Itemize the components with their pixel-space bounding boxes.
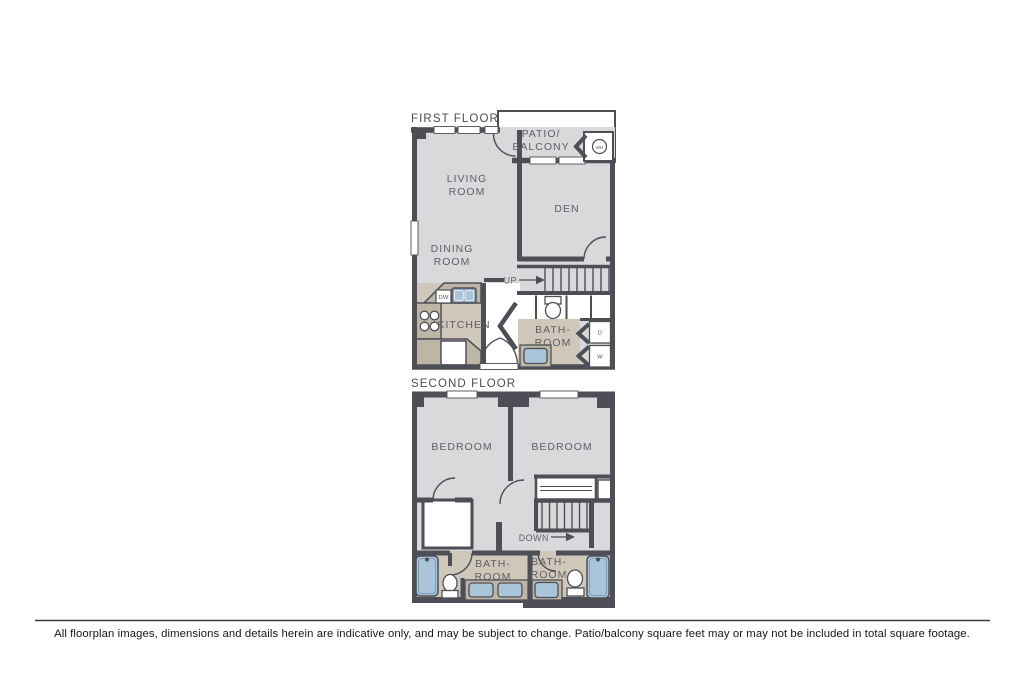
washer-label: W xyxy=(597,355,603,361)
dishwasher-label: DW xyxy=(438,295,448,301)
toilet xyxy=(545,297,561,319)
entry-threshold xyxy=(480,364,518,370)
living-room-label-2: ROOM xyxy=(449,186,486,198)
bathtub-left xyxy=(416,556,438,596)
bath-sink xyxy=(524,349,547,364)
toilet-right xyxy=(567,570,584,596)
patio-label-1: PATIO/ xyxy=(522,128,561,140)
floorplan-page: FIRST FLOOR DW xyxy=(0,0,1024,683)
dining-room-label-2: ROOM xyxy=(434,256,471,268)
bedroom-left-label: BEDROOM xyxy=(431,441,492,453)
sink-left-2 xyxy=(498,583,522,597)
floorplan-drawing: FIRST FLOOR DW xyxy=(0,0,1024,683)
bath-right-label-1: BATH- xyxy=(531,556,567,568)
bathtub-right xyxy=(587,556,609,598)
water-heater-label: WH xyxy=(596,145,604,150)
bathroom-label-2: ROOM xyxy=(535,337,572,349)
second-floor-title: SECOND FLOOR xyxy=(411,378,516,390)
bathroom-label-1: BATH- xyxy=(535,324,571,336)
den-label: DEN xyxy=(554,203,579,215)
up-label: UP xyxy=(504,276,517,286)
bedroom-right-label: BEDROOM xyxy=(531,441,592,453)
living-room-label-1: LIVING xyxy=(447,173,487,185)
toilet-left xyxy=(442,575,458,599)
bath-right-label-2: ROOM xyxy=(531,569,568,581)
first-floor-plan: FIRST FLOOR DW xyxy=(411,111,615,370)
sink-right xyxy=(535,583,558,598)
bath-left-label-2: ROOM xyxy=(475,571,512,583)
bathtub-right-faucet xyxy=(596,558,600,562)
dining-room-label-1: DINING xyxy=(431,243,474,255)
kitchen-label: KITCHEN xyxy=(437,319,490,331)
kitchen-sink xyxy=(452,288,476,303)
bath-left-label-1: BATH- xyxy=(475,558,511,570)
walk-in-closet xyxy=(423,500,472,548)
dryer-label: D xyxy=(598,331,602,337)
refrigerator xyxy=(441,341,466,365)
toilet-nook-floor xyxy=(518,295,611,319)
bedroom-closet xyxy=(536,477,613,500)
disclaimer-text: All floorplan images, dimensions and det… xyxy=(54,628,970,640)
down-label: DOWN xyxy=(519,533,549,543)
patio-label-2: BALCONY xyxy=(512,141,569,153)
sink-left-1 xyxy=(469,583,493,597)
first-floor-title: FIRST FLOOR xyxy=(411,113,499,125)
bathtub-left-faucet xyxy=(425,558,429,562)
second-floor-plan: SECOND FLOOR xyxy=(411,378,615,608)
